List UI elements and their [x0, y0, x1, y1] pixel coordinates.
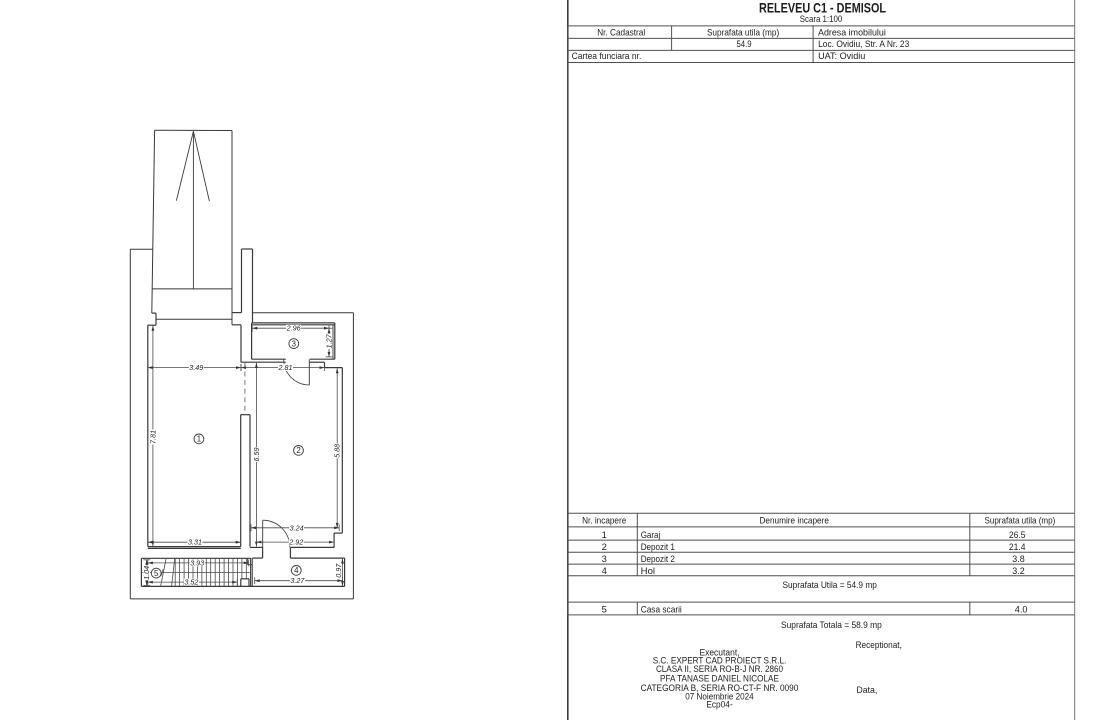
svg-text:Hol: Hol — [641, 565, 655, 576]
svg-text:2.92: 2.92 — [288, 538, 304, 547]
svg-text:3.52: 3.52 — [184, 578, 199, 587]
svg-text:Cartea funciara nr.: Cartea funciara nr. — [572, 50, 642, 61]
svg-text:Nr. incapere: Nr. incapere — [582, 515, 626, 526]
svg-text:7.81: 7.81 — [148, 430, 157, 444]
svg-text:0.97: 0.97 — [334, 563, 343, 578]
svg-text:2: 2 — [602, 541, 607, 552]
svg-text:21.4: 21.4 — [1009, 541, 1026, 552]
svg-text:3.2: 3.2 — [1012, 565, 1024, 576]
svg-text:2.81: 2.81 — [278, 363, 293, 372]
svg-text:3.27: 3.27 — [290, 576, 305, 585]
svg-text:3.24: 3.24 — [290, 523, 304, 532]
svg-text:54.9: 54.9 — [736, 38, 751, 49]
svg-text:6.59: 6.59 — [252, 447, 261, 462]
svg-text:2: 2 — [296, 446, 300, 455]
svg-text:Suprafata Totala = 58.9 mp: Suprafata Totala = 58.9 mp — [781, 619, 882, 630]
svg-text:3.93: 3.93 — [190, 558, 205, 567]
svg-text:5: 5 — [154, 569, 159, 578]
svg-text:Depozit 2: Depozit 2 — [641, 553, 675, 564]
svg-text:Garaj: Garaj — [641, 529, 661, 540]
svg-text:Data,: Data, — [857, 685, 878, 696]
svg-text:Suprafata utila (mp): Suprafata utila (mp) — [984, 515, 1055, 526]
svg-text:1.27: 1.27 — [325, 334, 334, 349]
svg-text:1: 1 — [197, 435, 201, 444]
svg-text:UAT: Ovidiu: UAT: Ovidiu — [818, 50, 865, 61]
svg-text:4.0: 4.0 — [1015, 603, 1028, 614]
svg-text:1.04: 1.04 — [142, 566, 151, 580]
svg-text:1: 1 — [602, 529, 607, 540]
svg-text:5.88: 5.88 — [333, 443, 342, 458]
svg-text:3.8: 3.8 — [1012, 553, 1024, 564]
svg-text:Depozit 1: Depozit 1 — [641, 541, 675, 552]
svg-text:Loc. Ovidiu, Str. A Nr. 23: Loc. Ovidiu, Str. A Nr. 23 — [818, 38, 909, 49]
svg-text:Receptionat,: Receptionat, — [856, 640, 902, 651]
svg-text:Adresa imobilului: Adresa imobilului — [818, 27, 886, 38]
svg-text:Nr. Cadastral: Nr. Cadastral — [597, 27, 645, 38]
svg-text:26.5: 26.5 — [1009, 529, 1026, 540]
svg-text:3: 3 — [292, 339, 296, 348]
svg-text:3.49: 3.49 — [189, 363, 204, 372]
svg-text:3: 3 — [602, 553, 607, 564]
svg-text:4: 4 — [602, 565, 607, 576]
svg-text:Denumire incapere: Denumire incapere — [759, 515, 829, 526]
svg-text:4: 4 — [294, 566, 299, 575]
svg-text:Scara 1:100: Scara 1:100 — [800, 14, 843, 24]
svg-text:5: 5 — [602, 603, 607, 614]
svg-text:RELEVEU C1 - DEMISOL: RELEVEU C1 - DEMISOL — [759, 0, 886, 15]
svg-text:3.31: 3.31 — [188, 538, 202, 547]
svg-text:Ecp04-: Ecp04- — [706, 700, 732, 711]
svg-text:Suprafata Utila = 54.9 mp: Suprafata Utila = 54.9 mp — [783, 579, 877, 590]
svg-text:Casa scarii: Casa scarii — [641, 603, 682, 614]
svg-text:Suprafata utila (mp): Suprafata utila (mp) — [707, 27, 779, 38]
svg-text:2.96: 2.96 — [286, 324, 302, 333]
